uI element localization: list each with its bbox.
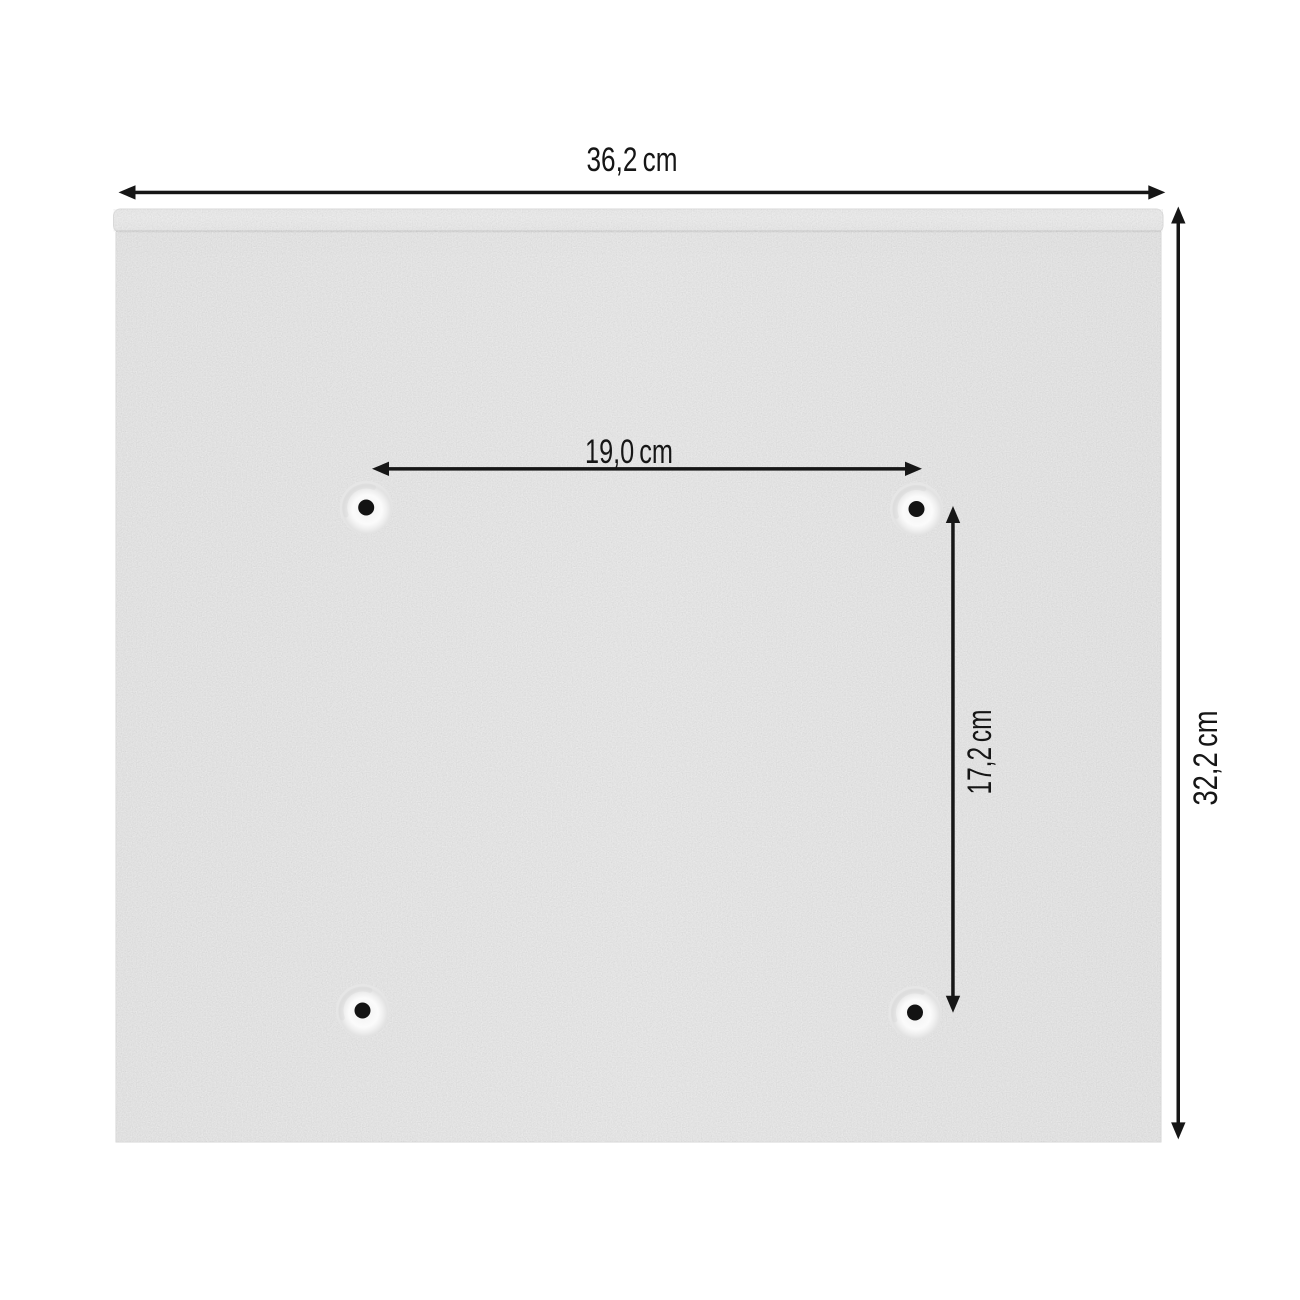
svg-text:36,2 cm: 36,2 cm — [587, 141, 678, 179]
svg-text:32,2 cm: 32,2 cm — [1187, 711, 1225, 806]
svg-text:17,2 cm: 17,2 cm — [961, 710, 999, 795]
svg-text:19,0 cm: 19,0 cm — [585, 433, 673, 471]
